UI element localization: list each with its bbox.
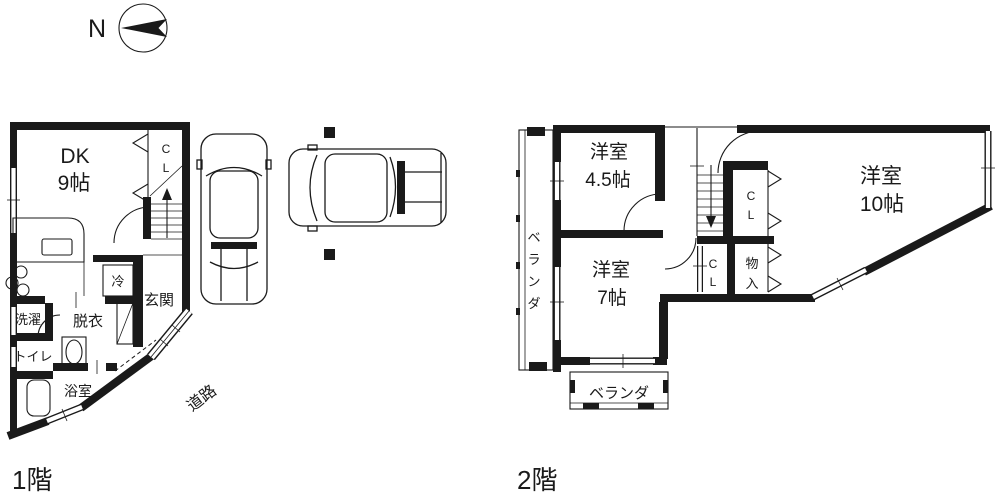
road-label: 道路 (184, 382, 220, 416)
closet-lower-label: L (710, 275, 717, 289)
car-icon-vertical (197, 134, 271, 304)
parking-area (197, 127, 446, 304)
floor1-closet (133, 130, 182, 202)
bifold-door-icon (768, 213, 781, 229)
floor2-stairs (690, 128, 723, 236)
toilet-label: トイレ (13, 349, 52, 364)
room10-label: 洋室 (860, 165, 902, 188)
room10-size-label: 10帖 (860, 193, 904, 216)
bifold-door-icon (768, 276, 781, 292)
floor2-plan: 洋室 4.5帖 洋室 10帖 洋室 7帖 C L C L 物 入 ベ ラ ン ダ… (516, 125, 995, 409)
door-arc (665, 238, 696, 269)
compass: N (88, 4, 167, 52)
bifold-door-icon (133, 134, 148, 152)
stove-burner-icon (17, 284, 29, 296)
closet-upper-label: C (747, 189, 756, 203)
room7-label: 洋室 (592, 259, 630, 281)
closet-lower-label: C (709, 257, 718, 271)
floor1-plan: DK 9帖 C L 冷 玄関 脱衣 洗濯 トイレ 浴室 道路 (6, 122, 220, 437)
stairs-down-arrow-icon (706, 216, 716, 228)
veranda-bottom-label: ベランダ (589, 385, 649, 402)
bathtub (27, 380, 50, 416)
closet-label: L (163, 161, 170, 175)
veranda-left-label: ラ (527, 252, 540, 267)
closet-sliding-door (693, 246, 707, 292)
bath-label: 浴室 (64, 383, 92, 399)
kitchen-counter (6, 218, 84, 296)
bifold-door-icon (768, 247, 781, 263)
car-icon-horizontal (289, 145, 446, 231)
closet-upper-label: L (748, 208, 755, 222)
dk-label: DK (60, 145, 89, 168)
stairs-up-arrow-icon (162, 188, 172, 200)
floor1-stairs (151, 188, 182, 239)
shoe-cabinet (117, 303, 133, 344)
room45-size-label: 4.5帖 (585, 169, 630, 191)
floor1-title: 1階 (12, 465, 52, 495)
dressing-label: 脱衣 (73, 313, 103, 330)
bifold-door-icon (768, 171, 781, 187)
compass-arrow-icon (121, 19, 167, 37)
storage-label: 物 (745, 256, 758, 271)
veranda-left (516, 127, 553, 371)
dk-size-label: 9帖 (58, 172, 91, 195)
veranda-left-label: ベ (527, 230, 540, 245)
laundry-label: 洗濯 (15, 312, 41, 327)
closet-label: C (162, 142, 171, 156)
veranda-left-label: ン (527, 274, 540, 289)
kitchen-sink (42, 239, 72, 255)
floorplan-svg: N (0, 0, 1000, 501)
fridge-label: 冷 (111, 274, 124, 289)
room45-label: 洋室 (590, 141, 628, 163)
floor2-closet-front (768, 170, 781, 292)
parking-post-marker (324, 127, 335, 138)
entrance-label: 玄関 (144, 292, 174, 309)
parking-post-marker (324, 249, 335, 260)
veranda-left-label: ダ (527, 296, 540, 311)
floor2-title: 2階 (517, 465, 557, 495)
storage-label: 入 (745, 276, 758, 291)
compass-north-label: N (88, 15, 106, 43)
room7-size-label: 7帖 (597, 287, 627, 309)
floorplan-image: N (0, 0, 1000, 501)
